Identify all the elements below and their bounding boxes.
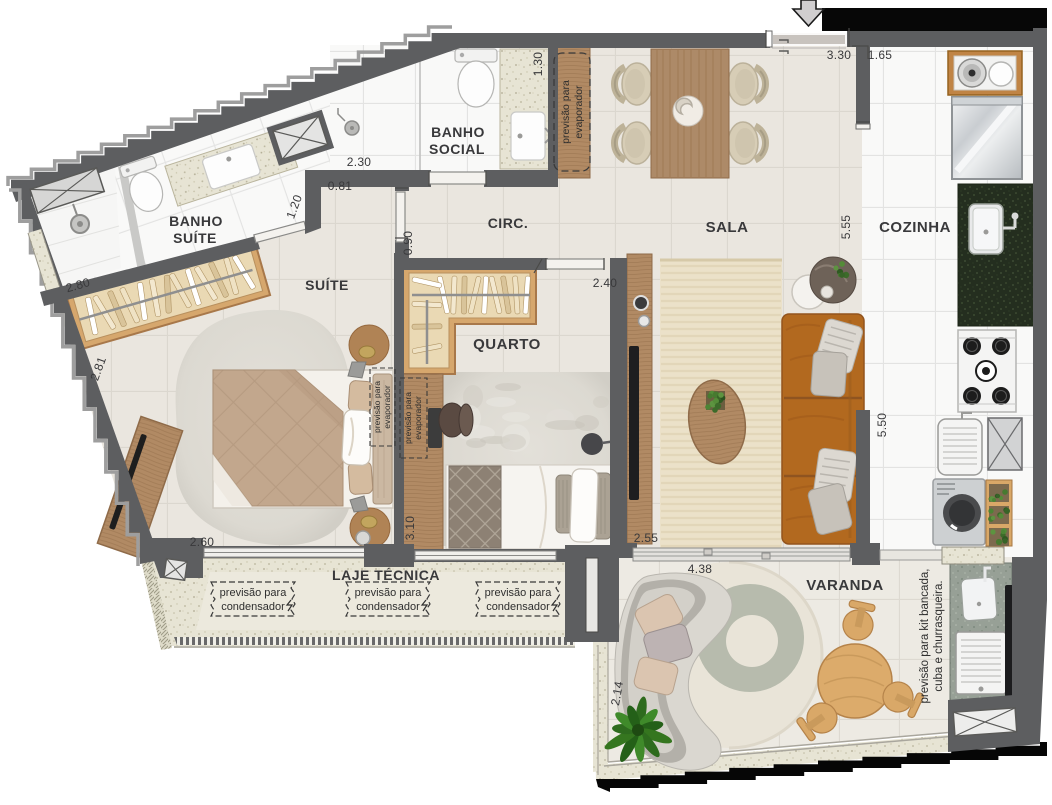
svg-text:CIRC.: CIRC. [488, 215, 529, 231]
svg-text:5.55: 5.55 [839, 215, 853, 240]
svg-text:SOCIAL: SOCIAL [429, 141, 485, 157]
svg-text:VARANDA: VARANDA [806, 577, 883, 594]
svg-text:0.90: 0.90 [401, 231, 415, 256]
svg-text:previsão para: previsão para [485, 587, 553, 599]
svg-text:previsão para: previsão para [403, 392, 413, 444]
svg-text:0.81: 0.81 [328, 179, 353, 193]
svg-text:2.60: 2.60 [190, 535, 215, 549]
svg-text:condensador: condensador [356, 601, 420, 613]
svg-text:3.10: 3.10 [403, 516, 417, 541]
svg-text:QUARTO: QUARTO [473, 336, 541, 353]
svg-text:1.65: 1.65 [868, 48, 893, 62]
svg-text:SUÍTE: SUÍTE [305, 277, 349, 293]
svg-text:2.55: 2.55 [634, 531, 659, 545]
svg-text:2.40: 2.40 [593, 276, 618, 290]
svg-text:evaporador: evaporador [382, 385, 392, 429]
svg-text:5.50: 5.50 [875, 413, 889, 438]
svg-text:previsão para: previsão para [560, 80, 572, 144]
svg-text:condensador: condensador [221, 601, 285, 613]
svg-text:BANHO: BANHO [431, 124, 485, 140]
svg-text:4.38: 4.38 [688, 562, 713, 576]
svg-text:SALA: SALA [706, 219, 749, 236]
svg-text:previsão para: previsão para [372, 381, 382, 433]
svg-text:previsão para: previsão para [220, 587, 288, 599]
svg-text:LAJE TÉCNICA: LAJE TÉCNICA [332, 567, 440, 583]
svg-text:evaporador: evaporador [573, 85, 585, 139]
svg-text:condensador: condensador [486, 601, 550, 613]
svg-text:COZINHA: COZINHA [879, 219, 951, 236]
svg-text:3.30: 3.30 [827, 48, 852, 62]
svg-text:BANHO: BANHO [169, 213, 223, 229]
svg-text:cuba e churrasqueira.: cuba e churrasqueira. [933, 580, 945, 691]
svg-text:1.30: 1.30 [531, 52, 545, 77]
svg-text:previsão para kit bancada,: previsão para kit bancada, [919, 569, 931, 704]
svg-text:evaporador: evaporador [413, 396, 423, 440]
svg-text:previsão para: previsão para [355, 587, 423, 599]
svg-text:2.30: 2.30 [347, 155, 372, 169]
svg-text:SUÍTE: SUÍTE [173, 230, 217, 246]
